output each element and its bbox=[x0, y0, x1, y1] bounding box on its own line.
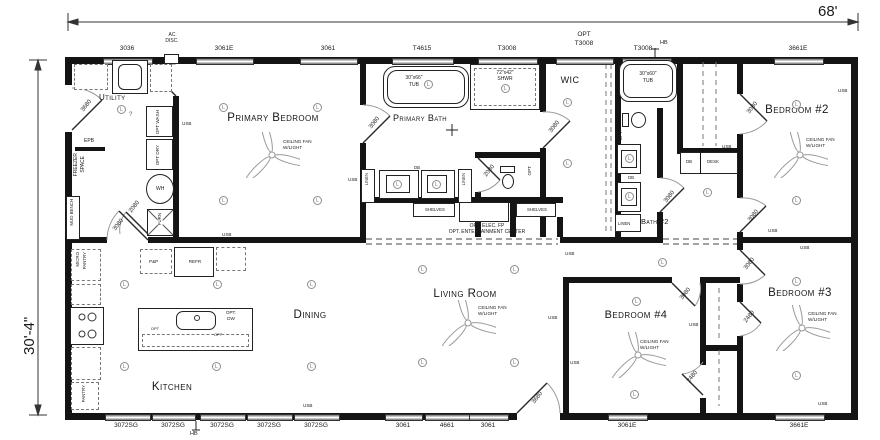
washer-label: OPT WASH bbox=[156, 110, 161, 134]
floor-plan: 68' 30'-4" bbox=[0, 0, 880, 440]
linen-label: LINEN bbox=[365, 173, 369, 185]
window-label: 3061 bbox=[396, 423, 410, 430]
window-label: 3061E bbox=[618, 423, 637, 430]
window-label: 3072SG bbox=[210, 423, 234, 430]
counter bbox=[71, 347, 101, 380]
window bbox=[385, 414, 423, 421]
opt-label: OPT bbox=[528, 166, 533, 175]
cabinet bbox=[150, 64, 172, 92]
cabinet bbox=[216, 247, 246, 271]
usb-label: USB bbox=[800, 246, 809, 251]
dryer: OPT DRY bbox=[146, 139, 173, 170]
shelves: SHELVES bbox=[516, 203, 556, 217]
window bbox=[425, 414, 471, 421]
light-symbol: L bbox=[658, 258, 667, 267]
window-label: 3061 bbox=[481, 423, 495, 430]
mud-bench: MUD BENCH bbox=[66, 196, 80, 240]
window-label: 3061 bbox=[321, 46, 335, 53]
db-label: DB bbox=[628, 176, 634, 181]
window-label: T3008 bbox=[498, 46, 516, 53]
fan-label: W/LIGHT bbox=[808, 318, 827, 323]
water-heater: WH bbox=[146, 174, 174, 204]
window-label: 3661E bbox=[790, 423, 809, 430]
room-label-bath2: Bath #2 bbox=[641, 218, 669, 226]
light-symbol: L bbox=[212, 362, 221, 371]
window bbox=[294, 414, 340, 421]
toilet-icon bbox=[631, 112, 646, 128]
entertainment-center bbox=[459, 202, 509, 222]
usb-label: USB bbox=[565, 252, 574, 257]
refrigerator: REFR bbox=[174, 247, 214, 277]
light-symbol: L bbox=[307, 280, 316, 289]
shelves: SHELVES bbox=[413, 203, 455, 217]
usb-label: USB bbox=[722, 145, 731, 150]
dryer-label: OPT DRY bbox=[156, 145, 161, 165]
light-symbol: L bbox=[630, 390, 639, 399]
light-symbol: L bbox=[632, 297, 641, 306]
room-label-wic: WIC bbox=[561, 76, 580, 85]
shelves-label: SHELVES bbox=[527, 208, 547, 213]
linen-cabinet: LINEN bbox=[458, 169, 472, 203]
light-symbol: L bbox=[424, 80, 433, 89]
linen-cabinet: LINEN bbox=[615, 214, 641, 232]
window-label-opt: OPT bbox=[577, 32, 590, 39]
room-label-living: Living Room bbox=[433, 289, 496, 301]
unknown-mark: ? bbox=[129, 112, 132, 118]
cabinet: P&P bbox=[140, 249, 172, 274]
linen-cabinet: LINEN bbox=[361, 169, 375, 203]
toilet-icon bbox=[500, 166, 515, 173]
light-symbol: L bbox=[792, 371, 801, 380]
opt-pendant-label: OPT bbox=[214, 333, 222, 337]
shower-label: SHWR bbox=[497, 77, 512, 82]
fan-label: W/LIGHT bbox=[478, 312, 497, 317]
db-label: DB bbox=[686, 160, 692, 165]
window-label: 4661 bbox=[440, 423, 454, 430]
light-symbol: L bbox=[213, 280, 222, 289]
window bbox=[469, 414, 509, 421]
range bbox=[70, 307, 104, 345]
light-symbol: L bbox=[792, 277, 801, 286]
fan-label: W/LIGHT bbox=[806, 144, 825, 149]
usb-label: USB bbox=[182, 122, 191, 127]
cabinet bbox=[74, 64, 108, 90]
pantry-label: PANTRY bbox=[82, 385, 87, 402]
shelves-label: SHELVES bbox=[425, 208, 445, 213]
db-label: DB bbox=[414, 166, 420, 171]
light-symbol: L bbox=[792, 196, 801, 205]
hose-bib-label: HB bbox=[190, 432, 198, 438]
room-label-bedroom4: Bedroom #4 bbox=[605, 310, 668, 321]
light-symbol: L bbox=[625, 154, 634, 163]
toilet-icon bbox=[502, 174, 514, 189]
tub-size-label: 30"x66" bbox=[405, 76, 422, 81]
room-label-dining: Dining bbox=[294, 310, 327, 322]
window-label: 3072SG bbox=[114, 423, 138, 430]
desk-label: DESK bbox=[707, 160, 719, 165]
ac-disc-label: DISC. bbox=[165, 39, 178, 44]
desk-divider bbox=[700, 152, 701, 174]
usb-label: USB bbox=[303, 404, 312, 409]
light-symbol: L bbox=[418, 358, 427, 367]
light-symbol: L bbox=[510, 358, 519, 367]
light-symbol: L bbox=[418, 265, 427, 274]
light-symbol: L bbox=[432, 180, 441, 189]
fan-label: W/LIGHT bbox=[640, 346, 659, 351]
window-label: 3661E bbox=[789, 46, 808, 53]
pots-pans-label: P&P bbox=[149, 260, 158, 265]
fan-label: W/LIGHT bbox=[283, 146, 302, 151]
room-label-utility: Utility bbox=[99, 94, 126, 102]
tub-label: TUB bbox=[409, 83, 419, 88]
window bbox=[105, 414, 151, 421]
usb-label: USB bbox=[818, 402, 827, 407]
window bbox=[608, 414, 648, 421]
usb-label: USB bbox=[838, 89, 847, 94]
light-symbol: L bbox=[393, 180, 402, 189]
linen-label: LINEN bbox=[618, 222, 630, 226]
light-symbol: L bbox=[120, 362, 129, 371]
opt-label: OPT bbox=[619, 131, 624, 140]
window-label: 3072SG bbox=[257, 423, 281, 430]
light-symbol: L bbox=[510, 265, 519, 274]
window-label: T3008 bbox=[634, 46, 652, 53]
window-label: T4615 bbox=[413, 46, 431, 53]
tub-label: TUB bbox=[643, 79, 653, 84]
light-symbol: L bbox=[792, 100, 801, 109]
light-symbol: L bbox=[313, 196, 322, 205]
window bbox=[775, 414, 825, 421]
tub-size-label: 30"x60" bbox=[639, 72, 656, 77]
room-label-kitchen: Kitchen bbox=[152, 382, 192, 394]
light-symbol: L bbox=[307, 362, 316, 371]
light-symbol: L bbox=[625, 192, 634, 201]
window-label: 3072SG bbox=[161, 423, 185, 430]
room-label-primary-bedroom: Primary Bedroom bbox=[227, 113, 319, 125]
refrigerator-label: REFR bbox=[189, 260, 202, 265]
usb-label: USB bbox=[768, 229, 777, 234]
hose-bib-label: HB bbox=[660, 41, 668, 47]
counter bbox=[71, 284, 101, 305]
window-label: 3061E bbox=[215, 46, 234, 53]
mud-bench-label: MUD BENCH bbox=[70, 199, 75, 226]
window-label: 3036 bbox=[120, 46, 134, 53]
window bbox=[392, 58, 454, 65]
window-label: T3008 bbox=[575, 41, 593, 48]
room-label-bedroom3: Bedroom #3 bbox=[768, 288, 832, 300]
light-symbol: L bbox=[501, 84, 510, 93]
light-symbol: L bbox=[117, 105, 126, 114]
pantry: PANTRY bbox=[71, 382, 99, 410]
washer: OPT WASH bbox=[146, 106, 173, 137]
usb-label: USB bbox=[348, 178, 357, 183]
light-symbol: L bbox=[563, 98, 572, 107]
usb-label: USB bbox=[222, 233, 231, 238]
linen-label: LINEN bbox=[462, 173, 466, 185]
opt-pendant-label: OPT bbox=[151, 327, 159, 331]
freezer-space-label: FREEZER bbox=[74, 153, 79, 176]
window bbox=[200, 414, 246, 421]
window-label: 3072SG bbox=[304, 423, 328, 430]
toilet-icon bbox=[622, 113, 629, 127]
window bbox=[774, 58, 824, 65]
epb-label: EPB bbox=[84, 139, 94, 144]
window bbox=[196, 58, 254, 65]
dishwasher-label: DW bbox=[227, 317, 235, 322]
light-symbol: L bbox=[313, 103, 322, 112]
usb-label: USB bbox=[548, 316, 557, 321]
utility-sink-basin bbox=[118, 64, 142, 90]
usb-label: USB bbox=[689, 323, 698, 328]
micro-pantry-label: PANTRY bbox=[83, 252, 88, 269]
light-symbol: L bbox=[703, 188, 712, 197]
usb-label: USB bbox=[570, 361, 579, 366]
ac-disconnect bbox=[164, 54, 179, 64]
light-symbol: L bbox=[219, 103, 228, 112]
furnace-label: FURN bbox=[158, 213, 163, 225]
furnace: FURN bbox=[147, 209, 174, 236]
window bbox=[300, 58, 358, 65]
window bbox=[247, 414, 293, 421]
room-label-primary-bath: Primary Bath bbox=[393, 114, 447, 123]
island-cabinets bbox=[142, 334, 249, 347]
ent-center-label: OPT. ENTERTAINMENT CENTER bbox=[449, 230, 525, 235]
micro-pantry-label: MICRO bbox=[76, 252, 81, 267]
light-symbol: L bbox=[563, 159, 572, 168]
window bbox=[152, 414, 196, 421]
light-symbol: L bbox=[219, 196, 228, 205]
light-symbol: L bbox=[120, 280, 129, 289]
window bbox=[556, 58, 614, 65]
water-heater-label: WH bbox=[156, 187, 164, 192]
freezer-space-label: SPACE bbox=[81, 156, 86, 173]
